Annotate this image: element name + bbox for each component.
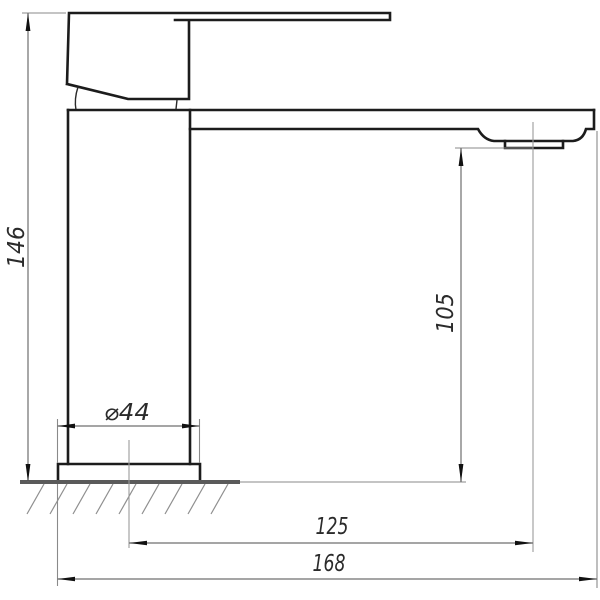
dim-label-105: 105 [433,293,459,333]
lever-handle [67,13,390,99]
cartridge-neck-line [176,100,177,109]
lever-hinge-line [75,87,78,110]
dim-label-125: 125 [316,514,349,540]
arrowhead-right [515,541,533,546]
dimension-spout-reach: 125 [129,514,533,545]
dim-label-44: ⌀44 [104,400,150,426]
dimension-total-height: 146 [4,13,66,482]
dimension-outlet-height: 105 [433,148,533,482]
arrowhead-up [26,13,31,31]
mounting-surface [20,482,466,514]
arrowhead-up [459,148,464,166]
technical-drawing-canvas: 146 105 ⌀44 125 [0,0,600,600]
faucet-dimension-drawing: 146 105 ⌀44 125 [0,0,600,600]
arrowhead-left [129,541,147,546]
arrowhead-down [459,464,464,482]
arrowhead-down [26,464,31,482]
dim-label-168: 168 [313,551,346,577]
arrowhead-left [58,577,76,582]
dim-label-146: 146 [4,226,30,268]
arrowhead-right [579,577,597,582]
arrowhead-left [58,424,76,429]
